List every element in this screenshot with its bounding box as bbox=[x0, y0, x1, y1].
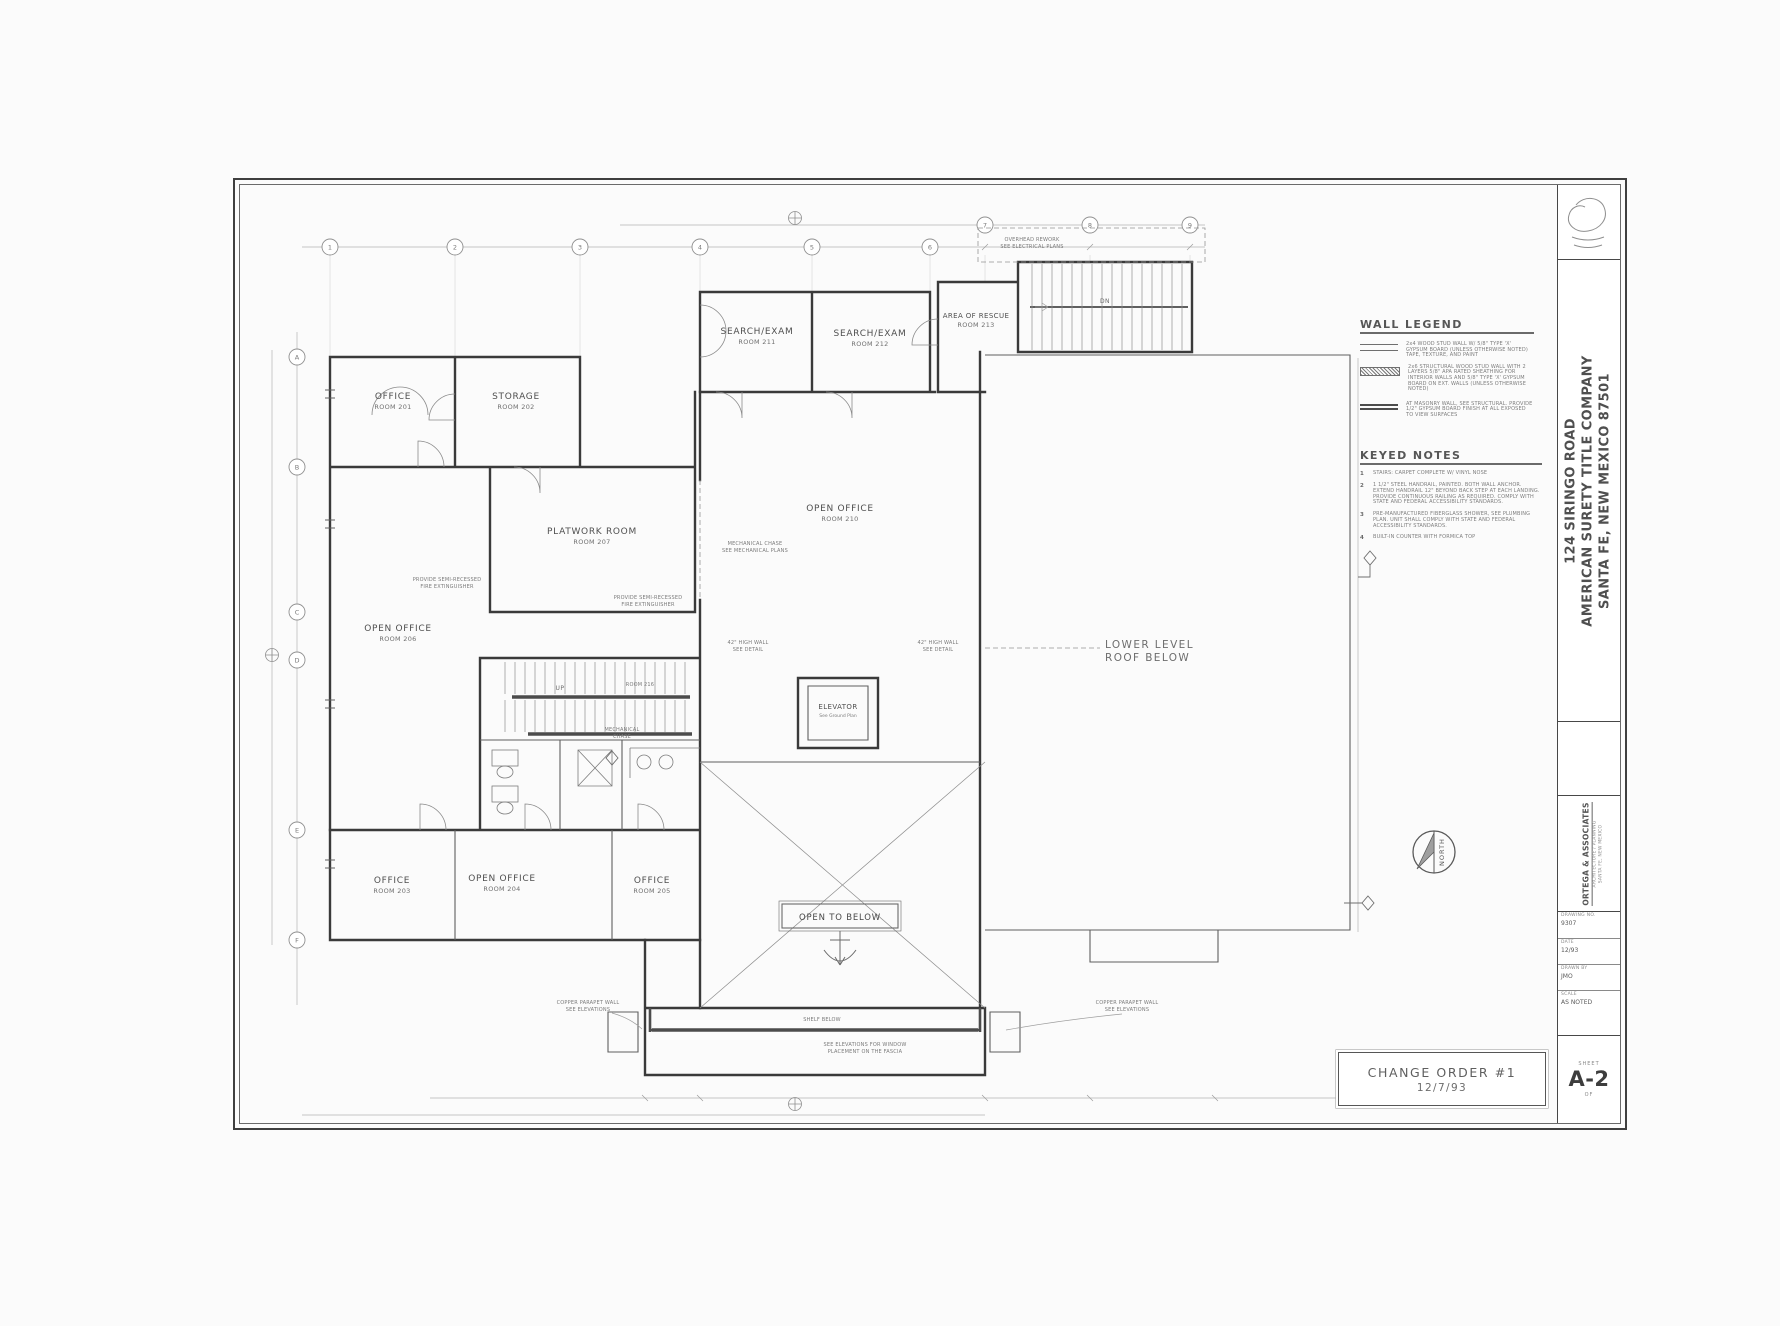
wall-type-description: 2x4 WOOD STUD WALL W/ 5/8" TYPE 'X' GYPS… bbox=[1406, 342, 1534, 359]
firm-subline: SANTA FE, NEW MEXICO bbox=[1599, 798, 1605, 910]
row-label: DRAWN BY bbox=[1561, 966, 1617, 971]
keyed-note-item: 4 BUILT-IN COUNTER WITH FORMICA TOP bbox=[1360, 535, 1542, 541]
title-block-row: SCALE AS NOTED bbox=[1558, 990, 1620, 1016]
of-word: OF bbox=[1585, 1092, 1594, 1098]
firm-name: ORTEGA & ASSOCIATES bbox=[1582, 802, 1593, 905]
change-order-title: CHANGE ORDER #1 bbox=[1368, 1065, 1517, 1080]
wall-type-description: 2x6 STRUCTURAL WOOD STUD WALL WITH 2 LAY… bbox=[1408, 365, 1534, 393]
wall-legend-item: AT MASONRY WALL, SEE STRUCTURAL. PROVIDE… bbox=[1360, 402, 1534, 419]
row-value: JMO bbox=[1561, 973, 1617, 980]
title-block-row: DRAWN BY JMO bbox=[1558, 964, 1620, 990]
row-label: DRAWING NO. bbox=[1561, 913, 1617, 918]
sheet-number: A-2 bbox=[1568, 1069, 1609, 1090]
title-block-row: DATE 12/93 bbox=[1558, 938, 1620, 964]
keyed-note-text: STAIRS: CARPET COMPLETE W/ VINYL NOSE bbox=[1373, 471, 1487, 477]
keyed-note-item: 2 1 1/2" STEEL HANDRAIL, PAINTED. BOTH W… bbox=[1360, 483, 1542, 506]
project-title-section: 124 SIRINGO ROAD AMERICAN SURETY TITLE C… bbox=[1558, 259, 1620, 722]
keyed-note-number: 2 bbox=[1360, 483, 1368, 506]
change-order-box: CHANGE ORDER #1 12/7/93 bbox=[1338, 1052, 1546, 1106]
row-value: 12/93 bbox=[1561, 947, 1617, 954]
architect-stamp bbox=[1558, 185, 1620, 259]
keyed-note-text: 1 1/2" STEEL HANDRAIL, PAINTED. BOTH WAL… bbox=[1373, 483, 1542, 506]
keyed-note-text: PRE-MANUFACTURED FIBERGLASS SHOWER, SEE … bbox=[1373, 512, 1542, 529]
wall-type-symbol bbox=[1360, 344, 1398, 351]
title-block-spacer bbox=[1558, 721, 1620, 796]
sheet-number-box: SHEET A-2 OF bbox=[1558, 1035, 1620, 1123]
architect-firm-section: ORTEGA & ASSOCIATES ARCHITECTURE / PLANN… bbox=[1558, 795, 1620, 912]
title-block: 124 SIRINGO ROAD AMERICAN SURETY TITLE C… bbox=[1557, 185, 1620, 1123]
keyed-note-item: 3 PRE-MANUFACTURED FIBERGLASS SHOWER, SE… bbox=[1360, 512, 1542, 529]
wall-legend-item: 2x4 WOOD STUD WALL W/ 5/8" TYPE 'X' GYPS… bbox=[1360, 342, 1534, 359]
stamp-scribble bbox=[1558, 185, 1618, 257]
wall-type-symbol bbox=[1360, 404, 1398, 410]
row-value: AS NOTED bbox=[1561, 999, 1617, 1006]
wall-legend: WALL LEGEND 2x4 WOOD STUD WALL W/ 5/8" T… bbox=[1360, 318, 1534, 419]
keyed-notes-title: KEYED NOTES bbox=[1360, 449, 1542, 465]
wall-legend-item: 2x6 STRUCTURAL WOOD STUD WALL WITH 2 LAY… bbox=[1360, 365, 1534, 393]
keyed-note-text: BUILT-IN COUNTER WITH FORMICA TOP bbox=[1373, 535, 1475, 541]
keyed-notes: KEYED NOTES 1 STAIRS: CARPET COMPLETE W/… bbox=[1360, 449, 1542, 541]
project-address: 124 SIRINGO ROAD bbox=[1564, 266, 1581, 716]
keyed-note-number: 3 bbox=[1360, 512, 1368, 529]
title-block-row: DRAWING NO. 9307 bbox=[1558, 912, 1620, 938]
project-city: SANTA FE, NEW MEXICO 87501 bbox=[1597, 266, 1614, 716]
keyed-note-item: 1 STAIRS: CARPET COMPLETE W/ VINYL NOSE bbox=[1360, 471, 1542, 477]
title-block-data-rows: DRAWING NO. 9307 DATE 12/93 DRAWN BY JMO… bbox=[1558, 911, 1620, 1036]
wall-type-description: AT MASONRY WALL, SEE STRUCTURAL. PROVIDE… bbox=[1406, 402, 1534, 419]
project-company: AMERICAN SURETY TITLE COMPANY bbox=[1581, 266, 1598, 716]
wall-legend-title: WALL LEGEND bbox=[1360, 318, 1534, 334]
row-label: SCALE bbox=[1561, 992, 1617, 997]
project-title-rotated: 124 SIRINGO ROAD AMERICAN SURETY TITLE C… bbox=[1564, 266, 1615, 716]
change-order-date: 12/7/93 bbox=[1417, 1082, 1467, 1094]
keyed-note-number: 4 bbox=[1360, 535, 1368, 541]
architect-firm-rotated: ORTEGA & ASSOCIATES ARCHITECTURE / PLANN… bbox=[1574, 798, 1605, 910]
row-value: 9307 bbox=[1561, 920, 1617, 927]
wall-type-symbol bbox=[1360, 367, 1400, 376]
keyed-note-number: 1 bbox=[1360, 471, 1368, 477]
row-label: DATE bbox=[1561, 940, 1617, 945]
